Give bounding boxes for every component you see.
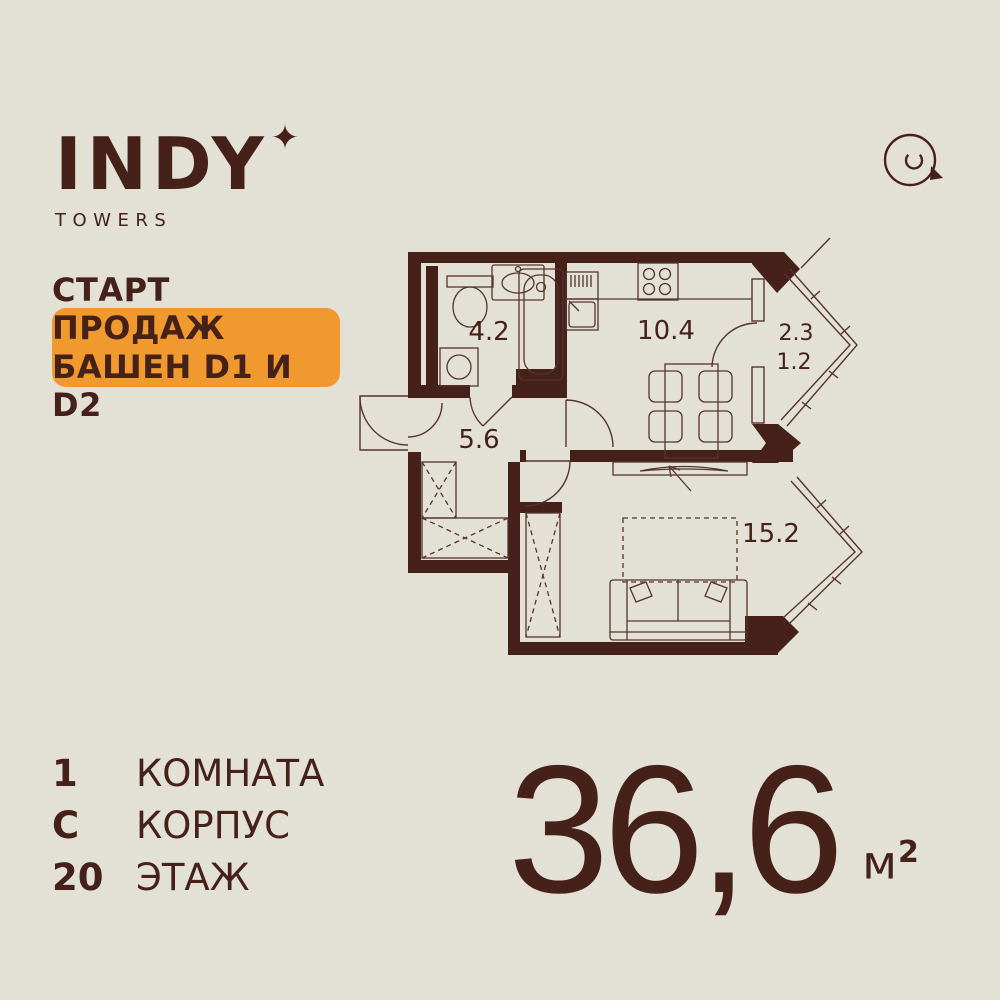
rotate-icon-circle [885,135,935,185]
room-label-living: 15.2 [742,519,800,549]
floor-plan: 4.2 10.4 2.3 1.2 5.6 15.2 [340,230,880,670]
room-label-bathroom: 4.2 [468,317,509,347]
spec-rooms-label: КОМНАТА [136,752,324,795]
bed-zone [623,518,737,582]
brand-logo: INDY ✦ TOWERS [55,130,299,231]
hall-wardrobes [422,462,508,558]
total-area-unit: м2 [862,835,920,889]
stove [638,263,678,300]
total-area: 36,6 м2 [508,738,920,920]
total-area-value: 36,6 [508,738,838,920]
pillow [705,582,727,602]
sparkle-icon: ✦ [271,122,300,154]
bathroom-door [470,397,512,426]
room-label-hall: 5.6 [458,425,499,455]
living-furniture [526,462,747,640]
pillow [630,582,652,602]
apartment-specs: 1 КОМНАТА С КОРПУС 20 ЭТАЖ [52,747,324,903]
promo-badge-line1: СТАРТ ПРОДАЖ [52,271,340,348]
room-label-balcony-full: 2.3 [779,321,814,346]
promo-badge: СТАРТ ПРОДАЖ БАШЕН D1 И D2 [52,308,340,387]
kitchen-door [566,400,613,447]
kitchen-fixtures [566,263,752,458]
entry-door-arc2 [408,403,442,437]
spec-building-label: КОРПУС [136,804,290,847]
spec-floor-value: 20 [52,856,136,899]
area-unit-letter: м [862,835,898,889]
chair [699,371,732,402]
listing-card: { "brand": { "name": "INDY", "star": "✦"… [0,0,1000,1000]
rotate-icon-arc [906,155,922,169]
brand-name: INDY [55,130,269,198]
entry-door-arc [360,397,408,445]
spec-row-rooms: 1 КОМНАТА [52,747,324,799]
balcony-door-arc [712,323,757,367]
sink [492,265,544,300]
washing-machine [440,348,478,386]
spec-floor-label: ЭТАЖ [136,856,250,899]
spec-building-value: С [52,804,136,847]
promo-badge-line2: БАШЕН D1 И D2 [52,348,340,425]
living-door [525,461,570,506]
chair [699,411,732,442]
tv [640,467,728,472]
room-label-kitchen: 10.4 [637,316,695,346]
toilet-tank [447,276,493,287]
rotate-icon-pointer [930,166,943,180]
rotate-view-icon[interactable] [878,128,948,198]
room-label-balcony-reduced: 1.2 [777,350,812,375]
tv-arrow [669,466,691,491]
spec-row-building: С КОРПУС [52,799,324,851]
spec-row-floor: 20 ЭТАЖ [52,851,324,903]
spec-rooms-value: 1 [52,752,136,795]
area-unit-sup: 2 [898,835,920,870]
brand-subtitle: TOWERS [55,210,299,231]
